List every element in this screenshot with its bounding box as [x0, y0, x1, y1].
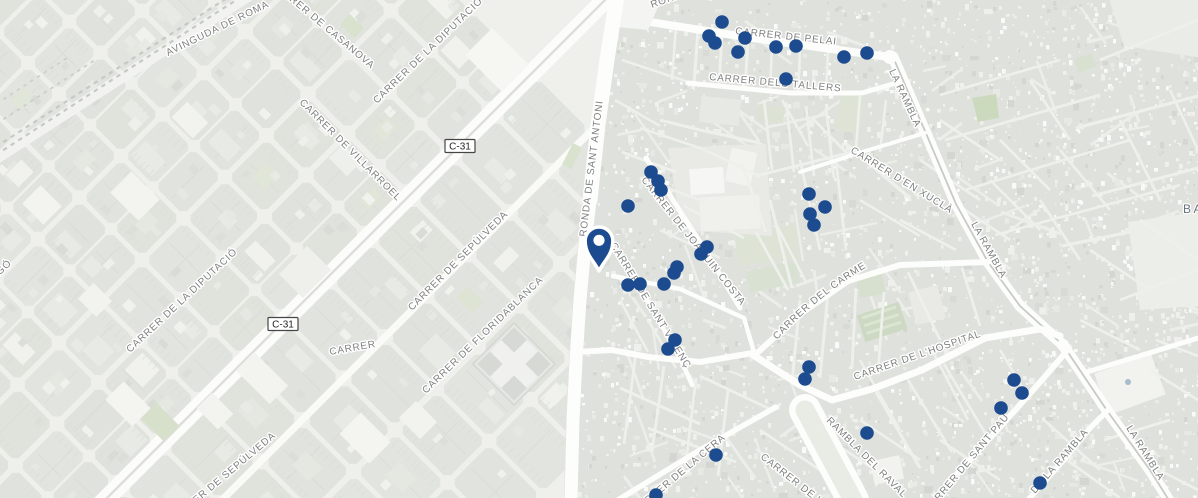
svg-text:C-31: C-31: [449, 142, 471, 153]
svg-text:C-31: C-31: [272, 320, 294, 331]
svg-text:BARRI: BARRI: [1183, 202, 1198, 216]
